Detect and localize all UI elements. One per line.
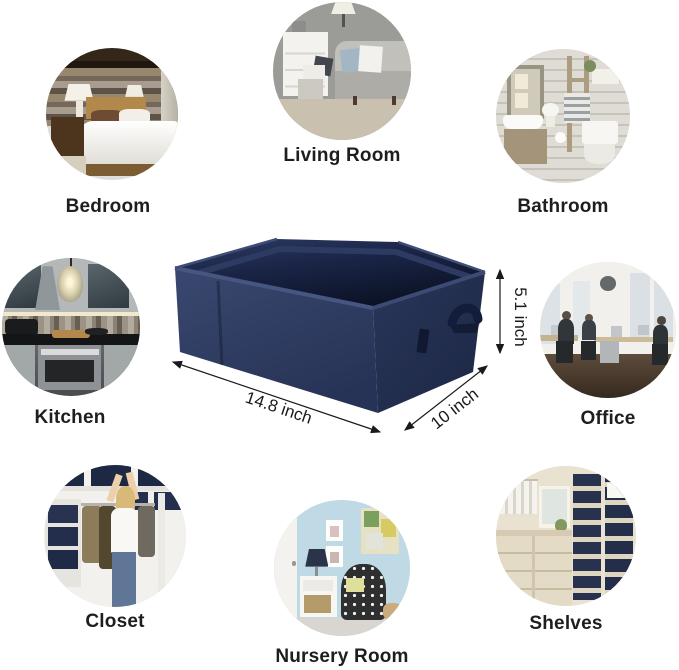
bedroom-floor [46,156,86,180]
shelves-bins-column1 [573,474,601,600]
nursery-frame2-art [330,552,340,563]
living-sofa-leg2 [392,96,396,106]
shelves-rod [499,479,538,482]
closet-photo [44,465,186,607]
office-chair-right [652,344,668,366]
kitchen-oven-window [45,360,95,382]
nursery-gallery-art2 [381,519,396,537]
closet-label: Closet [5,611,225,633]
living-carpet [273,99,411,140]
kitchen-label: Kitchen [0,407,180,429]
living-sofa-leg [353,96,357,106]
bedroom-lamp2-shade [125,85,143,97]
nursery-room-label: Nursery Room [232,646,452,668]
nursery-gallery-art1 [364,511,379,527]
closet-organizer-bin2 [48,527,78,545]
office-monitor2 [638,325,649,336]
office-monitor1 [611,326,622,337]
nursery-floor [274,618,410,636]
bathroom-paper-roll [555,132,566,143]
nursery-toys [383,603,402,619]
office-chair-mid [581,341,596,360]
closet-coat-gray [138,506,155,557]
nursery-chair-pillow [346,578,364,593]
shelves-label: Shelves [456,613,676,635]
width-dimension-label: 14.8 inch [243,388,314,428]
product-infographic: Bedroom Living Room [0,0,679,670]
bathroom-sink [503,115,543,130]
shelves-divider [601,466,605,606]
bedroom-duvet [79,121,178,169]
bathroom-label: Bathroom [453,196,673,218]
nursery-lamp-shade [305,549,328,567]
living-room-photo [273,2,411,140]
living-decor [292,21,306,32]
office-photo [540,262,676,398]
bedroom-bed-frame [83,164,178,176]
nursery-gallery-art3 [366,533,382,549]
basket-figure: 14.8 inch 10 inch 5.1 inch [160,235,540,445]
office-person-mid-body [582,320,596,339]
kitchen-range-handle [41,349,99,355]
closet-organizer-bin3 [48,550,78,568]
shelves-white-box [607,483,631,498]
kitchen-glass-cabinet-right [88,264,129,308]
bedroom-beam [46,61,178,68]
bathroom-toilet-tank [582,121,618,144]
bathroom-shelf-basket [592,69,619,84]
office-chair-left [556,341,572,363]
bathroom-vanity [504,129,547,164]
bathroom-mirror-art2 [515,93,528,108]
closet-shelf-right [158,493,165,592]
bathroom-towel [564,93,589,122]
office-round-window [600,276,616,291]
shelves-drawer-gap [532,536,535,606]
kitchen-toaster-oven [5,319,38,336]
nursery-basket [304,595,331,613]
bathroom-photo [496,49,630,183]
kitchen-cabinet-right [104,345,140,396]
kitchen-photo [2,258,140,396]
kitchen-cabinet-left [2,345,35,396]
office-cabinet [600,341,619,363]
kitchen-glass-cabinet-left [5,264,41,308]
kitchen-pendant-glass [57,266,83,302]
bathroom-toilet-bowl [584,144,615,164]
bathroom-mirror-art1 [515,74,528,89]
nursery-nightstand-drawer [303,580,333,591]
living-pillow-white [358,45,383,73]
living-room-label: Living Room [232,145,452,167]
closet-woman-jeans [112,552,136,607]
closet-organizer-bin1 [48,505,78,523]
kitchen-pan [85,328,108,335]
kitchen-under-cabinet-light [2,312,140,316]
bathroom-vase [546,116,555,127]
bathroom-ladder-rung [567,78,589,82]
living-sofa-seat [335,71,411,99]
office-person-right-head [657,316,666,325]
bedroom-label: Bedroom [0,196,218,218]
bedroom-nightstand [51,117,84,157]
bedroom-photo [46,48,178,180]
nursery-frame1-art [330,526,340,537]
shelves-photo [496,466,636,606]
shelves-hanging-clothes [500,480,536,514]
bedroom-lamp-base [76,101,83,117]
height-dimension-label: 5.1 inch [511,287,530,347]
nursery-room-photo [274,500,410,636]
closet-woman-shirt [111,508,138,553]
